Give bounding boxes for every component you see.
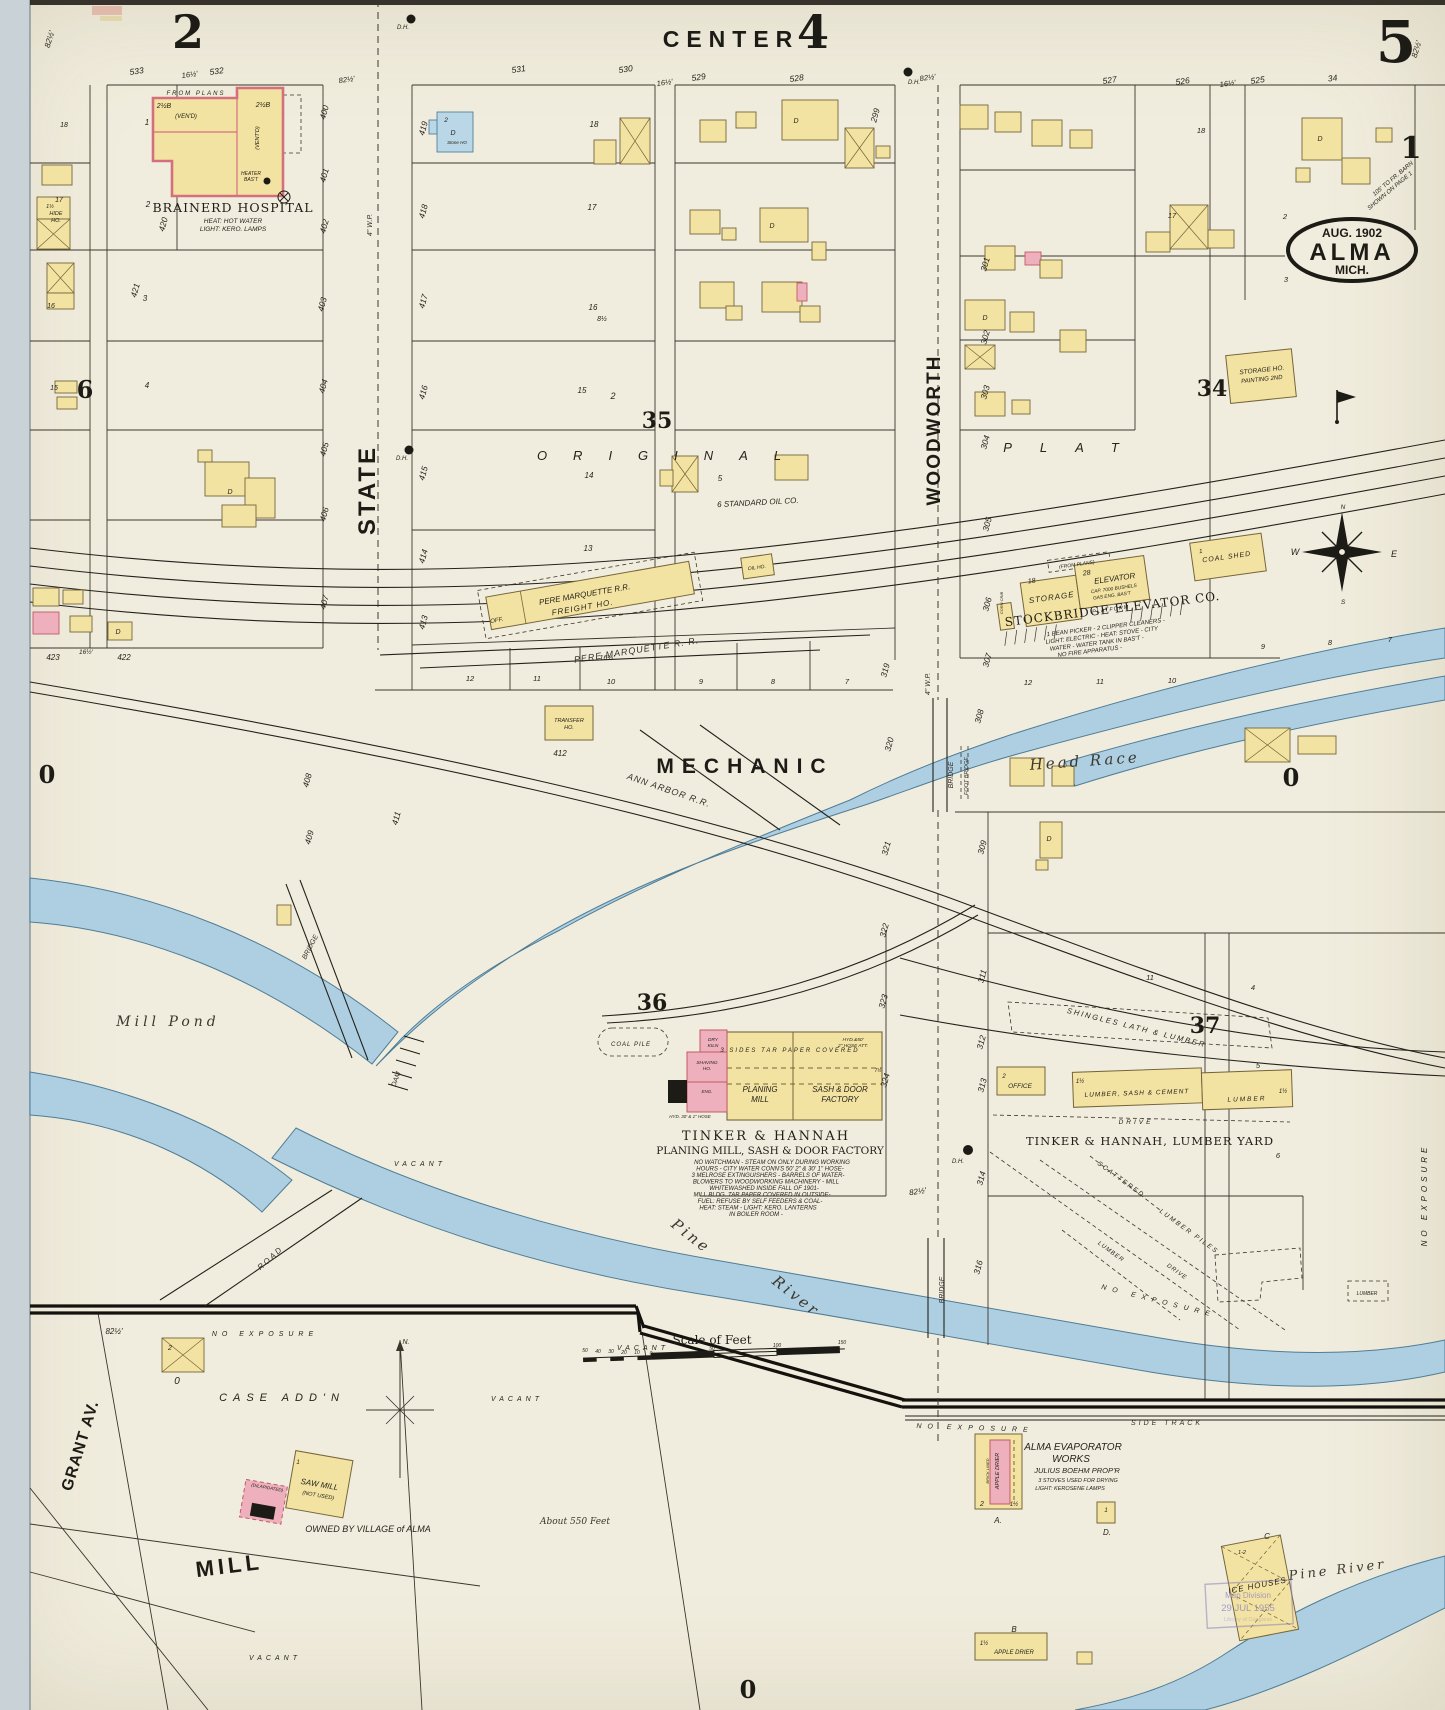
map-label: 13 <box>584 544 593 553</box>
map-label: About 550 Feet <box>539 1517 610 1527</box>
building <box>594 140 616 164</box>
building <box>1036 860 1048 870</box>
map-label: D.H. <box>396 456 408 462</box>
building <box>33 612 59 634</box>
map-label: 416 <box>416 384 429 401</box>
map-label: 2" HOSE ATT. <box>837 1043 868 1049</box>
map-label: 420 <box>156 216 169 233</box>
map-label: STATE <box>354 445 381 535</box>
map-label: DRIVE <box>1119 1119 1154 1126</box>
stamp-state: MICH. <box>1335 263 1369 277</box>
map-label: 50 <box>582 1348 588 1354</box>
map-label: ORIGINAL <box>537 448 807 463</box>
compass-rose-icon <box>1302 512 1382 592</box>
map-label: 16½' <box>1219 78 1237 89</box>
building <box>660 470 673 486</box>
map-label: 418 <box>416 203 429 220</box>
map-label: SIDE TRACK <box>1131 1420 1203 1427</box>
map-label: 306 <box>980 596 993 613</box>
map-label: 2½B <box>255 101 271 109</box>
map-label: NO EXPOSURE <box>1420 1144 1429 1247</box>
map-label: PLANING MILL, SASH & DOOR FACTORY <box>656 1145 885 1157</box>
building <box>1208 230 1234 248</box>
scan-edge-strip <box>0 0 30 1710</box>
map-label: 411 <box>390 810 403 826</box>
map-label: D. <box>1103 1528 1111 1537</box>
map-label: 405 <box>317 441 330 458</box>
map-label: D <box>115 629 120 636</box>
map-label: 314 <box>974 1170 987 1187</box>
map-label: 17 <box>588 203 597 212</box>
stamp-city: ALMA <box>1309 239 1394 266</box>
map-label: 2 <box>1282 212 1288 221</box>
building <box>1146 232 1170 252</box>
building <box>1070 130 1092 148</box>
map-label: BAS'T <box>244 177 259 183</box>
map-label: 16½' <box>656 77 674 88</box>
map-label: HOURS - CITY WATER CONN'S 50' 2" & 30' 1… <box>696 1167 843 1173</box>
map-label: TINKER & HANNAH <box>682 1129 850 1144</box>
map-label: 323 <box>876 993 889 1010</box>
map-label: 28 <box>1081 569 1091 577</box>
map-label: 82½' <box>919 72 937 83</box>
map-label: 423 <box>46 653 60 662</box>
map-label: 11 <box>533 674 541 683</box>
map-label: N <box>1341 504 1346 511</box>
building <box>429 120 437 134</box>
map-label: D <box>1317 136 1322 143</box>
map-label: LIGHT: KEROSENE LAMPS <box>1035 1486 1105 1492</box>
map-label: NO WATCHMAN - STEAM ON ONLY DURING WORKI… <box>694 1160 850 1166</box>
map-label: 4 <box>1251 983 1255 992</box>
map-label: D <box>982 315 987 322</box>
map-label: SASH & DOOR <box>812 1085 868 1094</box>
building <box>1040 260 1062 278</box>
map-label: 415 <box>416 465 429 482</box>
map-label: 6 STANDARD OIL CO. <box>717 496 799 509</box>
building <box>70 616 92 632</box>
map-label: 1½ <box>980 1640 988 1647</box>
map-label: 82½' <box>105 1327 123 1336</box>
scan-edges <box>0 0 1445 1710</box>
building <box>995 112 1021 132</box>
map-label: 408 <box>300 772 313 789</box>
map-label: 1½ <box>1010 1501 1018 1508</box>
map-labels: CENTER241635340036370STATEWOODWORTHMECHA… <box>39 5 1429 1704</box>
map-label: 533 <box>129 65 145 77</box>
building <box>960 105 988 129</box>
map-label: 1½ <box>46 203 54 210</box>
map-label: WORKS <box>1052 1454 1090 1465</box>
building <box>1077 1652 1092 1664</box>
map-label: 4 <box>797 5 829 59</box>
map-label: 2½B <box>156 102 172 110</box>
page-number: 5 <box>1376 8 1416 76</box>
building <box>198 450 212 462</box>
map-label: APPLE DRIER <box>993 1650 1034 1656</box>
map-label: 322 <box>877 922 890 939</box>
map-label: HIDE <box>49 211 62 217</box>
map-label: 82½' <box>43 29 57 48</box>
map-label: 1 <box>1104 1508 1107 1514</box>
map-label: MILL <box>194 1549 264 1582</box>
map-label: (VEN'D) <box>175 114 197 120</box>
map-label: 4 <box>145 381 150 390</box>
map-label: NO EXPOSURE <box>1101 1284 1217 1319</box>
map-label: 527 <box>1102 74 1118 86</box>
building <box>812 242 826 260</box>
map-label: ENG. <box>701 1089 712 1094</box>
map-label: 531 <box>511 63 527 75</box>
map-label: B <box>1011 1625 1017 1634</box>
map-label: NO EXPOSURE <box>916 1423 1034 1434</box>
map-label: 18 <box>1027 577 1036 585</box>
scan-smudge <box>92 6 122 15</box>
map-label: 29 JUL 1955 <box>1221 1603 1275 1614</box>
map-label: GRANT AV. <box>59 1398 103 1493</box>
map-label: 414 <box>416 548 429 565</box>
pine-river <box>272 1128 1445 1386</box>
building <box>762 282 802 312</box>
map-label: 35 <box>642 408 673 434</box>
map-label: 9 <box>1261 642 1266 651</box>
map-label: 299 <box>868 107 882 125</box>
map-label: D <box>450 130 455 137</box>
heater-dot <box>264 178 271 185</box>
map-label: 0 <box>740 1675 757 1704</box>
map-label: N. <box>403 1339 410 1346</box>
map-label: 528 <box>789 72 805 84</box>
map-label: FOOT BRIDGE <box>964 757 970 795</box>
map-label: 8 <box>1328 638 1333 647</box>
building <box>965 345 995 369</box>
map-label: 529 <box>691 71 707 83</box>
map-label: D.H. <box>908 80 920 86</box>
map-label: 1 <box>296 1460 299 1466</box>
map-label: 3 <box>1284 275 1289 284</box>
map-label: 1½ <box>1076 1078 1084 1085</box>
map-label: BRICK LINED <box>985 1458 990 1483</box>
map-label: 1½ <box>1279 1088 1287 1095</box>
map-label: D <box>769 223 774 230</box>
map-label: 525 <box>1250 74 1266 86</box>
map-label: 312 <box>974 1034 987 1051</box>
building <box>782 100 838 140</box>
map-label: OFFICE <box>1008 1083 1032 1090</box>
map-label: PERE MARQUETTE R. R. <box>573 635 700 665</box>
building <box>690 210 720 234</box>
map-label: HO. <box>564 725 574 731</box>
map-label: 30 <box>608 1349 614 1355</box>
map-label: 11 <box>1146 973 1154 982</box>
map-label: APPLE DRIER <box>995 1453 1001 1490</box>
block-lines <box>30 85 1445 1710</box>
map-label: KILN <box>708 1043 719 1049</box>
map-canvas: AUG. 1902 ALMA MICH. 5 Scale of Feet CEN… <box>0 0 1445 1710</box>
building <box>33 588 59 606</box>
map-label: 6 <box>1276 1151 1281 1160</box>
map-label: 36 <box>637 990 668 1016</box>
map-label: 421 <box>128 282 141 299</box>
map-label: 313 <box>975 1077 988 1094</box>
map-label: 2 <box>443 117 448 124</box>
map-label: 15 <box>578 386 587 395</box>
map-label: HYD.&50' <box>843 1037 865 1043</box>
map-label: 0 <box>39 760 56 789</box>
map-label: W <box>1291 547 1301 557</box>
building <box>736 112 756 128</box>
city-stamp: AUG. 1902 ALMA MICH. <box>1288 219 1416 281</box>
building <box>726 306 742 320</box>
map-label: 404 <box>316 378 329 395</box>
map-label: WHITEWASHED INSIDE FALL OF 1901- <box>709 1186 819 1192</box>
office <box>997 1067 1045 1095</box>
building <box>700 120 726 142</box>
map-label: JULIUS BOEHM PROP'R <box>1033 1466 1120 1475</box>
building <box>1025 252 1041 265</box>
map-label: 17 <box>55 197 64 204</box>
map-label: 400 <box>317 104 330 121</box>
building <box>1010 312 1034 332</box>
map-label: 16 <box>589 303 598 312</box>
building <box>620 118 650 164</box>
map-label: 419 <box>416 120 429 137</box>
building <box>63 590 83 604</box>
map-label: 409 <box>302 829 315 846</box>
map-label: 82½' <box>338 74 356 85</box>
building <box>162 1338 204 1372</box>
map-label: 7½ <box>875 1067 883 1074</box>
map-label: 18 <box>1197 126 1206 135</box>
building <box>42 165 72 185</box>
map-label: C <box>1264 1532 1270 1541</box>
map-label: 316 <box>971 1259 984 1276</box>
map-label: HO. <box>703 1066 712 1072</box>
map-label: 0 <box>1283 763 1300 792</box>
map-label: MECHANIC <box>656 755 833 778</box>
building <box>1296 168 1310 182</box>
map-label: HYD. 30' & 1" HOSE <box>669 1114 711 1119</box>
building <box>277 905 291 925</box>
map-label: 2 <box>167 1345 172 1352</box>
map-label: DAM <box>391 1071 403 1088</box>
map-label: 8 <box>771 677 776 686</box>
map-label: 3 STOVES USED FOR DRYING <box>1038 1478 1118 1484</box>
map-label: 304 <box>978 434 991 451</box>
map-label: LIGHT: KERO. LAMPS <box>200 226 267 233</box>
map-label: 5 <box>1256 1061 1261 1070</box>
map-label: FACTORY <box>821 1095 859 1104</box>
map-label: MILL <box>751 1095 769 1104</box>
map-label: CENTER <box>663 26 800 52</box>
map-label: LUMBER <box>1096 1241 1125 1264</box>
building <box>1032 120 1062 146</box>
map-label: PLANING <box>742 1085 777 1094</box>
map-label: 417 <box>416 293 429 310</box>
building <box>845 128 874 168</box>
building <box>876 146 890 158</box>
map-label: 50 <box>709 1346 715 1352</box>
map-label: 14 <box>585 471 594 480</box>
building <box>1012 400 1030 414</box>
building <box>760 208 808 242</box>
map-label: 3 MELROSE EXTINGUISHERS - BARRELS OF WAT… <box>691 1173 844 1179</box>
map-label: FUEL: REFUSE BY SELF FEEDERS & COAL- <box>698 1199 823 1205</box>
sanborn-map-sheet: AUG. 1902 ALMA MICH. 5 Scale of Feet CEN… <box>0 0 1445 1710</box>
map-label: 9 <box>699 677 704 686</box>
map-label: 10 <box>634 1350 640 1356</box>
map-label: BRIDGE <box>948 761 955 788</box>
map-label: 82½' <box>909 1186 928 1197</box>
map-label: LUMBER <box>1357 1291 1378 1297</box>
map-label: 0 <box>650 1351 653 1357</box>
boiler <box>668 1080 687 1103</box>
map-label: 16½' <box>181 69 199 80</box>
building <box>797 283 807 301</box>
map-label: 319 <box>878 662 891 679</box>
map-label: D <box>1046 836 1051 843</box>
map-label: TRANSFER <box>554 718 584 724</box>
map-label: 100 <box>773 1343 782 1349</box>
map-label: 34 <box>1327 72 1338 83</box>
map-label: MILL BLDG. TAR PAPER COVERED IN OUTSIDE- <box>693 1193 830 1199</box>
map-label: HO. <box>51 218 61 224</box>
map-label: 12 <box>1024 678 1033 687</box>
map-label: 1 <box>1401 131 1422 166</box>
map-label: 309 <box>975 839 988 856</box>
map-label: 12 <box>466 674 475 683</box>
map-label: BRIDGE <box>939 1276 946 1303</box>
map-label: 15 <box>50 385 58 392</box>
map-label: 2 <box>172 5 204 59</box>
stamp-date: AUG. 1902 <box>1322 226 1382 240</box>
map-label: 402 <box>317 218 330 235</box>
head-race <box>376 628 1445 1066</box>
map-label: 16½' <box>79 648 94 656</box>
map-label: 150 <box>838 1340 847 1346</box>
map-label: 11 <box>1096 677 1104 686</box>
map-label: S <box>1341 599 1346 606</box>
map-label: VACANT <box>394 1161 446 1168</box>
map-label: CASE ADD'N <box>219 1392 345 1404</box>
building <box>1245 728 1290 762</box>
map-label: 320 <box>882 736 895 753</box>
map-label: A. <box>993 1516 1002 1525</box>
map-label: VACANT <box>491 1396 543 1403</box>
map-label: Mill Pond <box>115 1014 219 1030</box>
map-label: 10 <box>607 677 616 686</box>
map-label: Map Division <box>1225 1591 1271 1600</box>
map-label: E <box>1391 549 1398 559</box>
building <box>1376 128 1392 142</box>
map-label: BLOWERS TO WOODWORKING MACHINERY - MILL <box>693 1180 839 1186</box>
map-label: D <box>227 489 232 496</box>
map-label: ROAD <box>256 1244 285 1272</box>
map-label: 10 <box>1168 676 1177 685</box>
map-label: 311 <box>976 968 989 984</box>
map-label: Library of Congress <box>1224 1617 1272 1623</box>
map-label: NO EXPOSURE <box>212 1331 318 1338</box>
building <box>55 381 77 393</box>
map-label: HEAT: HOT WATER <box>204 218 263 225</box>
map-label: CORN CRIB <box>999 591 1004 614</box>
flag-icon <box>1335 390 1356 424</box>
map-label: (VENT'D) <box>255 126 261 150</box>
map-label: 321 <box>879 840 892 857</box>
map-label: BRIDGE <box>301 934 320 961</box>
map-label: SHINGLES LATH & LUMBER <box>1066 1006 1207 1049</box>
map-label: DRIVE <box>1165 1263 1187 1282</box>
map-label: LUMBER <box>1227 1095 1266 1103</box>
map-label: D <box>793 118 798 125</box>
building <box>1342 158 1370 184</box>
tail-race <box>30 1072 292 1212</box>
map-label: 422 <box>117 653 131 662</box>
map-label: 18 <box>60 122 68 129</box>
engine-room <box>687 1082 727 1112</box>
map-label: 8½ <box>597 315 607 323</box>
map-label: BRAINERD HOSPITAL <box>152 200 313 215</box>
buildings-static <box>153 88 1299 1660</box>
map-label: SHAVING <box>696 1060 718 1066</box>
map-label: 3 <box>143 294 148 303</box>
building <box>57 397 77 409</box>
map-label: 37 <box>1190 1013 1221 1039</box>
map-label: 412 <box>553 749 567 758</box>
map-label: 16½' <box>600 654 616 662</box>
map-label: WOODWORTH <box>924 355 945 506</box>
map-label: SCATTERED <box>1096 1160 1146 1199</box>
map-label: 401 <box>317 167 330 184</box>
map-label: 413 <box>416 614 429 631</box>
map-label: HEAT: STEAM - LIGHT: KERO. LANTERNS <box>699 1206 816 1212</box>
map-label: D.H. <box>397 25 409 31</box>
building <box>47 263 74 293</box>
map-label: 302 <box>978 329 991 346</box>
map-label: Stone HO <box>447 140 467 145</box>
map-label: 5 <box>718 474 723 483</box>
map-label: FROM PLANS <box>166 91 225 97</box>
map-label: 0 <box>174 1376 180 1387</box>
map-label: 17 <box>1168 211 1177 220</box>
map-label: 20 <box>620 1350 627 1356</box>
map-label: 1 <box>145 118 149 127</box>
map-label: PLAT <box>1003 440 1147 455</box>
map-label: COAL PILE <box>611 1042 651 1048</box>
map-label: 2 <box>609 391 615 401</box>
building <box>700 282 734 308</box>
map-label: ALMA EVAPORATOR <box>1023 1442 1122 1453</box>
buildings-generated <box>33 100 1392 1664</box>
head-race-bridge <box>933 698 947 812</box>
map-label: 2 <box>145 200 151 209</box>
map-label: IN BOILER ROOM - <box>729 1212 783 1218</box>
map-label: D.H. <box>952 1159 964 1165</box>
building <box>222 505 256 527</box>
map-label: 7 <box>845 677 850 686</box>
map-label: 4" W.P. <box>367 214 374 236</box>
building <box>1060 330 1086 352</box>
map-label: Pine <box>667 1214 715 1257</box>
map-label: 2 <box>979 1501 984 1508</box>
map-label: 16 <box>47 303 55 310</box>
map-label: 1-2 <box>1238 1550 1246 1556</box>
map-label: 40 <box>595 1349 601 1355</box>
north-arrow-icon <box>366 1340 434 1478</box>
map-label: 407 <box>317 594 330 611</box>
map-label: 526 <box>1175 75 1191 87</box>
map-label: 2 <box>1001 1074 1006 1080</box>
